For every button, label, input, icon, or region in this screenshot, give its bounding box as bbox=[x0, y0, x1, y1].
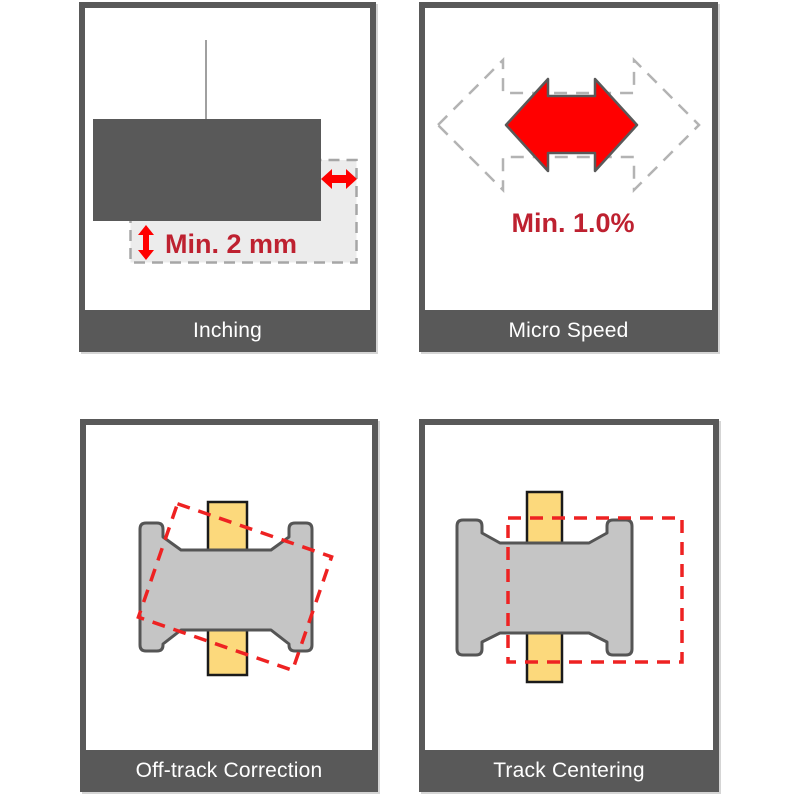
panel-track-centering: Track Centering bbox=[419, 419, 719, 792]
panel-off-track-correction: Off-track Correction bbox=[80, 419, 378, 792]
diagram-canvas: Min. 2 mm Inching Min. 1.0% Micro Speed bbox=[0, 0, 800, 800]
figure-micro-speed: Min. 1.0% bbox=[425, 8, 712, 310]
off-track-illustration bbox=[86, 425, 372, 750]
panel-inching: Min. 2 mm Inching bbox=[79, 2, 376, 352]
figure-track-centering bbox=[425, 425, 713, 750]
track-centering-illustration bbox=[425, 425, 713, 750]
pallet-rect bbox=[93, 119, 321, 221]
min-2mm-annotation: Min. 2 mm bbox=[165, 229, 297, 259]
panel-label-track-centering: Track Centering bbox=[425, 750, 713, 792]
inching-illustration: Min. 2 mm bbox=[85, 8, 370, 310]
panel-micro-speed: Min. 1.0% Micro Speed bbox=[419, 2, 718, 352]
speed-min-arrow-icon bbox=[506, 79, 637, 171]
micro-speed-illustration: Min. 1.0% bbox=[425, 8, 712, 310]
panel-label-micro-speed: Micro Speed bbox=[425, 310, 712, 352]
min-speed-annotation: Min. 1.0% bbox=[511, 208, 634, 238]
figure-inching: Min. 2 mm bbox=[85, 8, 370, 310]
panel-label-off-track-correction: Off-track Correction bbox=[86, 750, 372, 792]
panel-label-inching: Inching bbox=[85, 310, 370, 352]
figure-off-track-correction bbox=[86, 425, 372, 750]
